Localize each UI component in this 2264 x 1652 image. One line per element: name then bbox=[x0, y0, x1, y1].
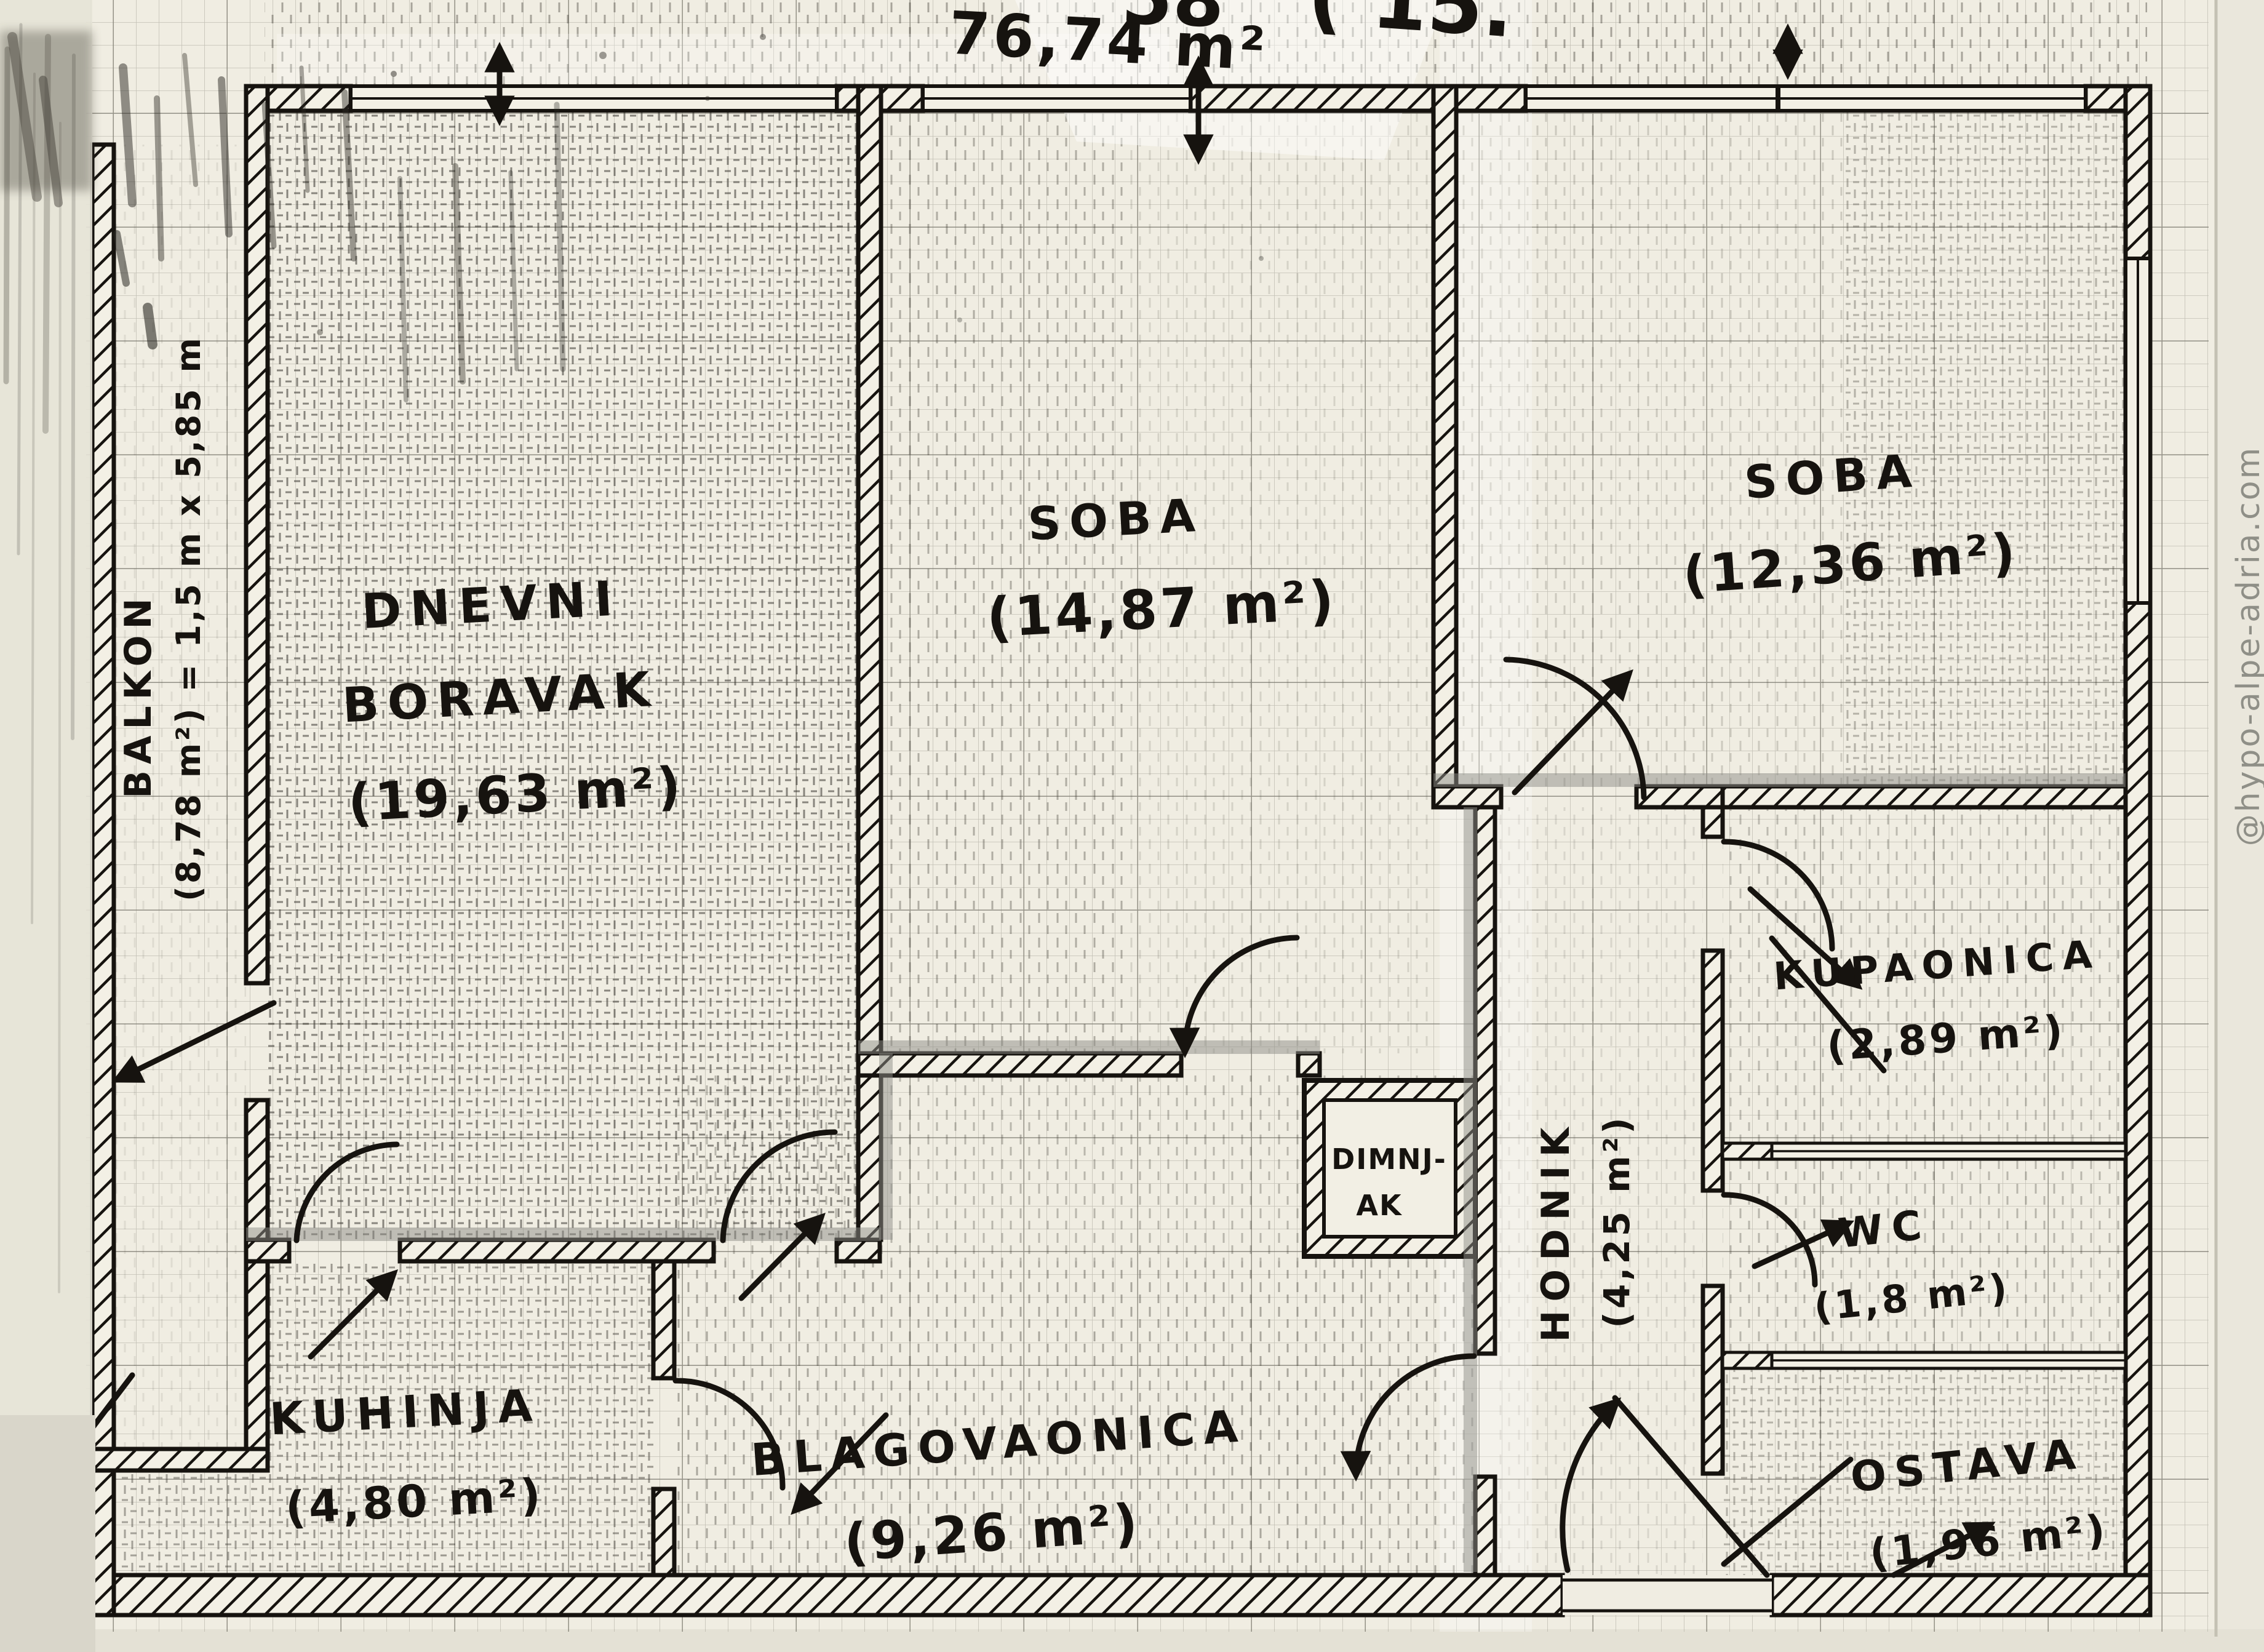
wall bbox=[400, 1240, 714, 1261]
window bbox=[923, 86, 1190, 111]
partition bbox=[1723, 1143, 2126, 1159]
wall bbox=[1475, 1477, 1495, 1575]
entrance-door-gap bbox=[1563, 1575, 1772, 1615]
wall bbox=[858, 1053, 1181, 1075]
room-label-soba1: SOBA bbox=[1027, 489, 1205, 551]
room-dims-balkon: (8,78 m²) = 1,5 m x 5,85 m bbox=[169, 335, 208, 901]
wall bbox=[246, 1240, 289, 1261]
wall bbox=[1703, 951, 1723, 1191]
room-label-hodnik: HODNIK bbox=[1533, 1119, 1578, 1342]
wall bbox=[1298, 1053, 1320, 1075]
window bbox=[1526, 86, 2086, 111]
wall bbox=[1433, 786, 1501, 807]
wall bbox=[653, 1261, 674, 1378]
window bbox=[2126, 258, 2150, 603]
room-label-dimnjak: AK bbox=[1356, 1189, 1403, 1222]
top-fragment: 58 bbox=[1120, 0, 1226, 44]
wall bbox=[1723, 786, 2126, 807]
wall bbox=[92, 1449, 268, 1470]
wall bbox=[1703, 1286, 1723, 1474]
watermark-text: @hypo-alpe-adria.com bbox=[2230, 446, 2264, 847]
partition bbox=[1723, 1352, 2126, 1368]
paper-bottom-margin bbox=[0, 1629, 2264, 1652]
wall bbox=[1475, 807, 1495, 1354]
wall bbox=[92, 1449, 114, 1615]
room-label-balkon: BALKON bbox=[117, 592, 160, 798]
room-label-wc: WC bbox=[1836, 1201, 1932, 1258]
floor-plan-photo: 76,74 m² 58 ( 15. DNEVNI BORAVAK (19,63 … bbox=[0, 0, 2264, 1652]
room-label-dimnjak: DIMNJ- bbox=[1331, 1143, 1447, 1176]
wall bbox=[246, 86, 268, 983]
wall bbox=[1636, 786, 1723, 807]
wall bbox=[98, 1575, 1563, 1615]
window bbox=[351, 86, 837, 111]
wall bbox=[246, 1100, 268, 1470]
wall bbox=[1703, 807, 1723, 837]
wall bbox=[653, 1489, 674, 1575]
wall-balcony-parapet bbox=[92, 145, 114, 1452]
wall bbox=[837, 1240, 880, 1261]
wall bbox=[1772, 1575, 2150, 1615]
room-area-hodnik: (4,25 m²) bbox=[1596, 1114, 1638, 1328]
wall bbox=[1190, 86, 1526, 111]
wall bbox=[1433, 86, 1456, 807]
